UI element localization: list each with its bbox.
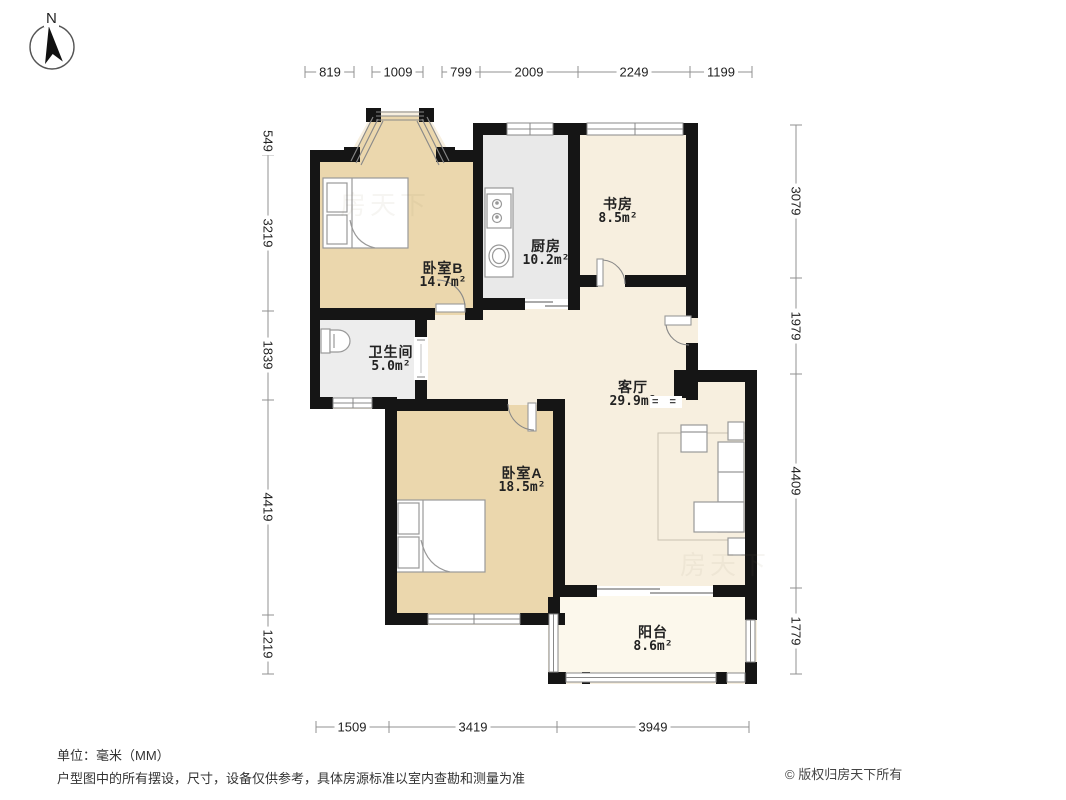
room-name: 卧室A: [499, 465, 546, 481]
toilet: [321, 329, 350, 353]
dim-top-2009: 2009: [512, 65, 547, 80]
dim-left-1839: 1839: [261, 338, 276, 373]
dim-left-549: 549: [261, 127, 276, 155]
dim-top-819: 819: [316, 65, 344, 80]
room-label-balcony: 阳台 8.6m²: [633, 624, 672, 655]
unit-note: 单位：毫米（MM）: [57, 745, 170, 764]
watermark: 房天下: [680, 545, 770, 582]
disclaimer: 户型图中的所有摆设，尺寸，设备仅供参考，具体房源标准以室内查勘和测量为准: [57, 768, 525, 787]
dim-bottom-1509: 1509: [335, 720, 370, 735]
room-label-bedroom-a: 卧室A 18.5m²: [499, 465, 546, 496]
dim-top-799: 799: [447, 65, 475, 80]
kitchen-sliding-door: [525, 299, 572, 309]
room-area: 8.6m²: [633, 640, 672, 655]
study-window: [587, 123, 683, 135]
room-label-bedroom-b: 卧室B 14.7m²: [420, 260, 467, 291]
kitchen-window: [507, 123, 553, 135]
room-area: 8.5m²: [598, 212, 637, 227]
room-name: 客厅: [610, 379, 657, 395]
room-name: 卧室B: [420, 260, 467, 276]
dim-top-1199: 1199: [704, 65, 738, 80]
compass-icon: [30, 25, 74, 69]
room-area: 14.7m²: [420, 276, 467, 291]
dim-top-1009: 1009: [381, 65, 416, 80]
dim-top-2249: 2249: [617, 65, 652, 80]
dim-right-4409: 4409: [789, 464, 804, 499]
room-label-study: 书房 8.5m²: [598, 196, 637, 227]
copyright: © 版权归房天下所有: [785, 764, 902, 783]
room-area: 18.5m²: [499, 481, 546, 496]
dim-bottom-3419: 3419: [456, 720, 491, 735]
balcony-sliding-door: [597, 586, 713, 596]
room-name: 阳台: [633, 624, 672, 640]
room-area: 10.2m²: [523, 254, 570, 269]
room-name: 书房: [598, 196, 637, 212]
bathroom-window: [333, 398, 372, 408]
room-name: 厨房: [523, 238, 570, 254]
living-step-marks: = =: [650, 396, 682, 408]
dim-right-1979: 1979: [789, 309, 804, 344]
dim-left-4419: 4419: [261, 490, 276, 525]
dim-left-3219: 3219: [261, 216, 276, 251]
bedroom-a-window: [428, 614, 520, 624]
room-area: 5.0m²: [369, 360, 414, 375]
room-label-bathroom: 卫生间 5.0m²: [369, 344, 414, 375]
watermark: 房天下: [340, 185, 430, 222]
compass-north-label: N: [44, 10, 59, 27]
room-name: 卫生间: [369, 344, 414, 360]
room-label-kitchen: 厨房 10.2m²: [523, 238, 570, 269]
bed-bedroom-a: [395, 500, 485, 572]
dim-right-1779: 1779: [789, 614, 804, 649]
floor-plan-canvas: [0, 0, 1066, 800]
kitchen-counter: [485, 188, 513, 277]
dim-right-3079: 3079: [789, 184, 804, 219]
dim-left-1219: 1219: [261, 627, 276, 662]
bathroom-door: [414, 337, 428, 380]
dim-bottom-3949: 3949: [636, 720, 671, 735]
